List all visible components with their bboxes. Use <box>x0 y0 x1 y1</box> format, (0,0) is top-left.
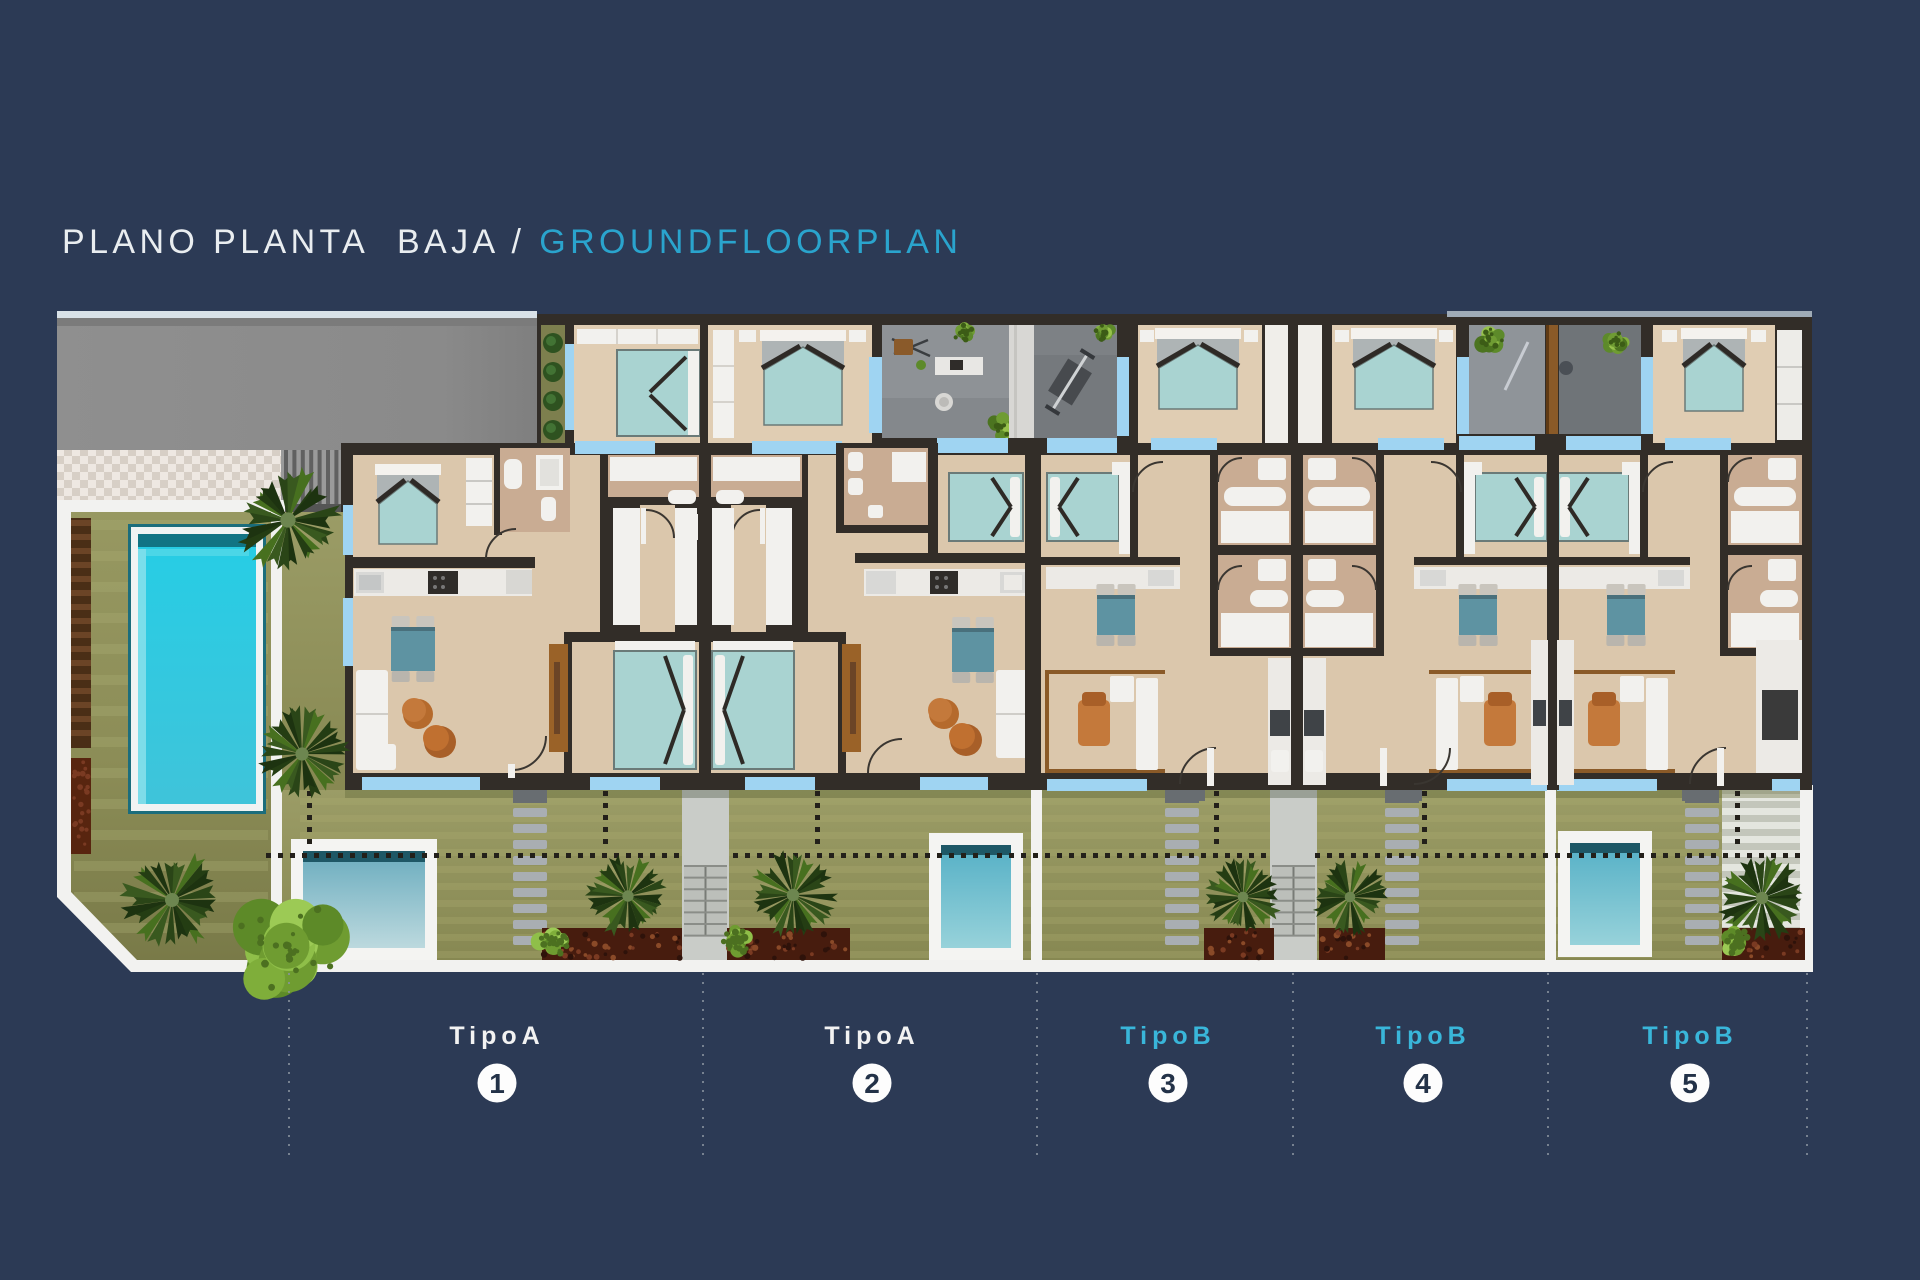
svg-text:4: 4 <box>1415 1068 1431 1099</box>
svg-text:5: 5 <box>1682 1068 1698 1099</box>
svg-text:1: 1 <box>489 1068 505 1099</box>
svg-text:3: 3 <box>1160 1068 1176 1099</box>
svg-text:TipoB: TipoB <box>1375 1022 1470 1050</box>
svg-text:TipoA: TipoA <box>449 1022 544 1050</box>
svg-text:PLANO PLANTA BAJA / GROUNDFLO: PLANO PLANTA BAJA / GROUNDFLOORPLAN <box>62 223 962 261</box>
svg-text:TipoB: TipoB <box>1642 1022 1737 1050</box>
svg-text:2: 2 <box>864 1068 880 1099</box>
svg-text:TipoA: TipoA <box>824 1022 919 1050</box>
svg-text:TipoB: TipoB <box>1120 1022 1215 1050</box>
